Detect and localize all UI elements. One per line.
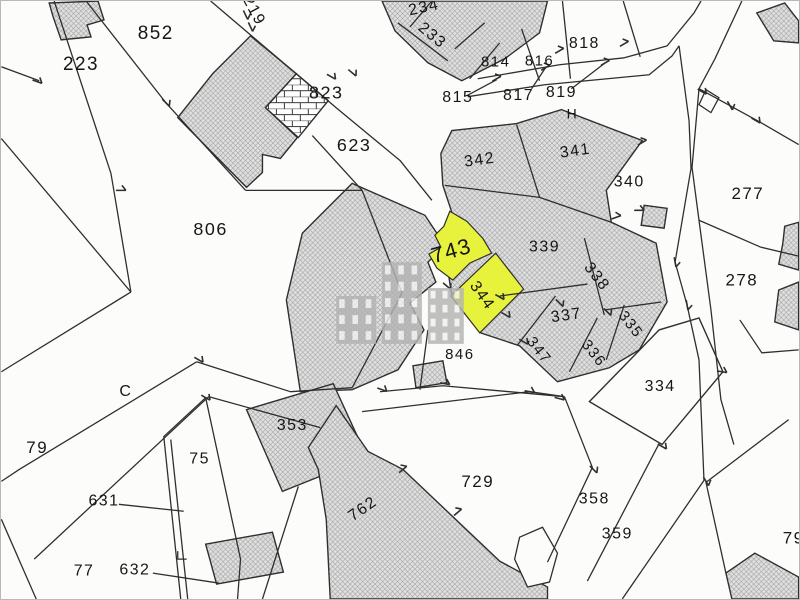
watermark-window [352,299,358,308]
parcel-label-77: 77 [74,562,95,579]
watermark-window [412,331,418,340]
parcel-label-632: 632 [119,561,150,578]
parcel-label-223: 223 [63,54,99,75]
parcel-label-277: 277 [731,184,764,203]
parcel-label-358: 358 [579,491,610,508]
parcel-label-H: H [567,105,579,121]
building-small-right [641,205,667,228]
parcel-label-219: 219 [239,1,269,29]
parcel-boundary-line [171,440,188,599]
parcel-boundary-line [548,397,593,562]
watermark-window [339,331,345,340]
watermark-window [454,305,459,313]
parcel-label-729: 729 [461,472,494,491]
parcel-boundary-line [1,67,39,81]
building-parallelogram [699,90,719,113]
parcel-label-806: 806 [193,219,227,239]
parcel-label-75: 75 [189,451,210,468]
building-bottom-right [726,553,799,599]
parcel-label-79: 79 [783,529,799,548]
parcel-boundary-line [1,519,36,599]
watermark-window [385,298,391,307]
watermark-window [442,291,447,299]
parcel-label-339: 339 [529,238,560,255]
building-top-left [49,1,104,40]
watermark-window [398,331,404,340]
watermark-window [412,265,418,274]
survey-tick-mark [617,37,628,46]
watermark-window [366,315,372,324]
survey-tick-mark [377,383,388,391]
watermark-window [454,333,459,341]
parcel-boundary-line [706,420,789,573]
watermark-window [442,333,447,341]
parcel-label-631: 631 [88,493,119,510]
parcel-762-west-piece [206,532,284,584]
watermark-window [339,299,345,308]
survey-tick-mark [451,505,462,515]
watermark-window [412,298,418,307]
survey-tick-mark [634,205,644,210]
watermark-window [352,331,358,340]
survey-tick-mark [201,391,212,400]
parcel-label-C: C [119,383,132,400]
watermark-window [385,265,391,274]
building-right-edge-1 [779,222,799,270]
survey-tick-mark [525,386,536,393]
parcel-boundary-line [380,386,564,397]
watermark-window [442,319,447,327]
watermark-window [398,314,404,323]
survey-tick-mark [610,211,621,219]
survey-tick-mark [194,353,205,362]
watermark-window [339,315,345,324]
watermark-window [398,282,404,291]
parcel-boundary-line [1,139,131,292]
survey-tick-mark [327,70,338,79]
survey-tick-mark [162,96,173,107]
survey-tick-mark [686,299,693,310]
watermark-window [431,291,436,299]
parcel-label-353: 353 [277,417,308,434]
parcel-label-816: 816 [525,53,554,70]
survey-tick-mark [348,66,359,76]
parcel-boundary-line [34,397,208,559]
parcel-top-right [757,3,799,43]
parcel-label-814: 814 [481,54,510,71]
parcel-label-359: 359 [602,525,633,542]
watermark-window [385,282,391,291]
cadastral-map: 219852223234233814816818815817819H823623… [1,1,799,599]
watermark-window [385,331,391,340]
parcel-label-819: 819 [546,84,577,101]
survey-tick-mark [751,114,762,123]
watermark-window [398,265,404,274]
survey-tick-mark [553,44,564,53]
watermark-window [412,282,418,291]
parcel-label-79: 79 [26,438,48,457]
parcel-label-852: 852 [138,23,174,44]
parcel-boundary-line [119,504,184,511]
watermark-window [366,299,372,308]
parcel-label-846: 846 [445,346,474,363]
parcel-label-340: 340 [614,174,645,191]
parcel-boundary-line [1,362,196,482]
watermark-window [442,305,447,313]
watermark-window [454,319,459,327]
survey-tick-mark [116,185,126,190]
parcel-boundary-line [699,89,799,145]
parcel-boundary-line [622,480,704,599]
watermark-window [398,298,404,307]
watermark-window [431,305,436,313]
watermark-window [412,314,418,323]
parcel-label-817: 817 [503,87,534,104]
watermark-window [352,315,358,324]
watermark-window [385,314,391,323]
parcel-label-823: 823 [309,82,343,102]
watermark-window [454,291,459,299]
watermark-window [431,319,436,327]
parcel-boundary-line [362,392,564,412]
parcel-label-334: 334 [645,378,676,395]
building-right-edge-2 [775,282,799,330]
parcel-label-818: 818 [569,35,600,52]
parcel-label-278: 278 [725,271,758,290]
parcel-label-815: 815 [442,89,473,106]
watermark-window [366,331,372,340]
cadastral-map-frame: 219852223234233814816818815817819H823623… [0,0,800,600]
survey-tick-mark [658,440,669,449]
watermark-window [431,333,436,341]
parcel-boundary-line [623,1,640,57]
parcel-762 [308,406,547,599]
parcel-label-623: 623 [337,135,371,155]
parcel-boundary-line [1,292,131,372]
parcel-boundary-line [54,1,131,292]
